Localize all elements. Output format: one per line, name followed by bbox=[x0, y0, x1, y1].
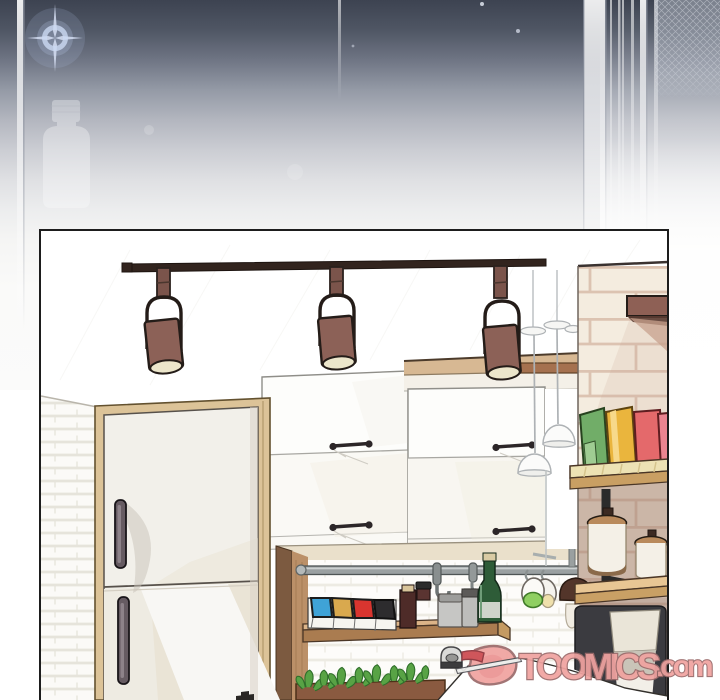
svg-text:.com: .com bbox=[656, 650, 713, 683]
svg-text:TOOMICS: TOOMICS bbox=[519, 646, 660, 687]
